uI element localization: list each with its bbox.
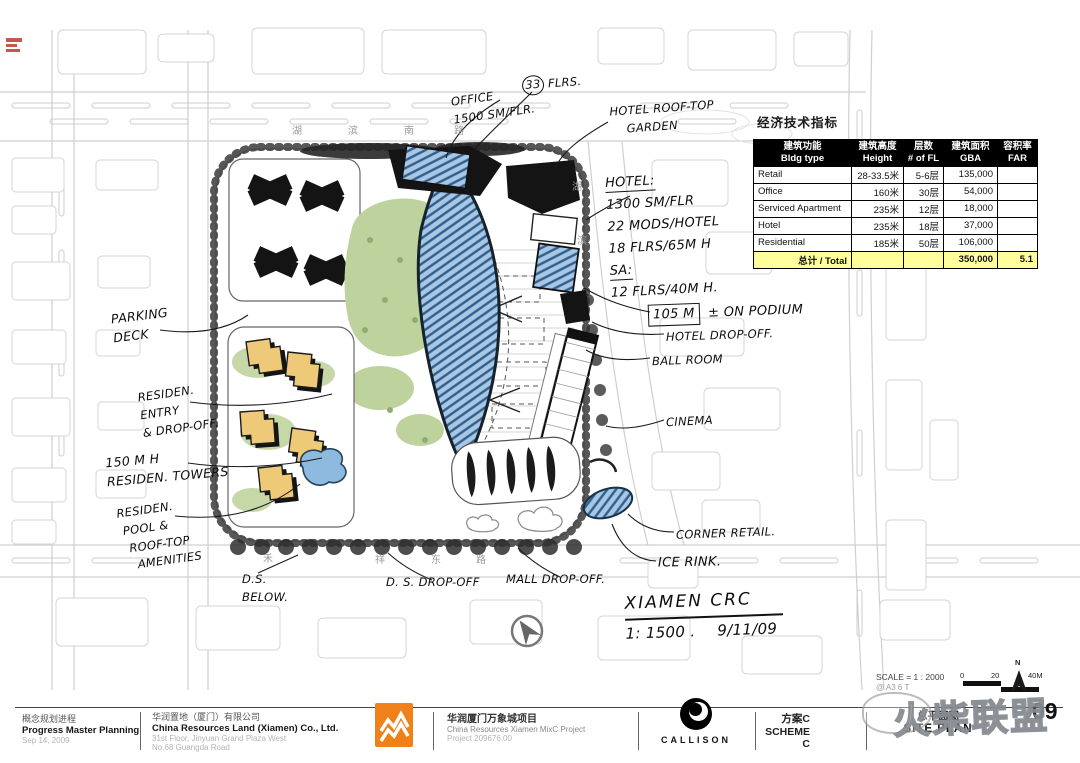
titleblock-divider [433, 712, 434, 750]
annotation-corner-retail: CORNER RETAIL. [676, 523, 776, 544]
client-address-2: No.68 Guangda Road [152, 743, 338, 752]
annotation-line: D.S. [242, 571, 288, 589]
annotation-ballroom: BALL ROOM [652, 351, 724, 371]
table-row: Office160米30层54,000 [754, 183, 1038, 200]
road-label-hexiang-east: 路 [476, 551, 486, 566]
titleblock-phase: 概念规划进程 Progress Master Planning Sep 14, … [22, 712, 139, 745]
road-label-hexiang-east: 东 [431, 551, 441, 566]
watermark: 火柴联盟 [892, 685, 1050, 744]
road-label-hubin-south: 滨 [348, 122, 358, 137]
annotation-signature: XIAMEN CRC 1: 1500 . 9/11/09 [624, 585, 784, 646]
annotation-hotel-dropoff: HOTEL DROP-OFF. [666, 325, 774, 347]
annotation-mall-dropoff: MALL DROP-OFF. [506, 571, 605, 589]
scale-tick: 0 [960, 671, 964, 680]
annotation-hotel-garden: HOTEL ROOF-TOP GARDEN [609, 96, 716, 139]
callison-logo-text: CALLISON [648, 735, 744, 745]
cloud-doodles [467, 507, 562, 532]
titleblock-client: 华润置地（厦门）有限公司 China Resources Land (Xiame… [152, 710, 338, 752]
client-name-en: China Resources Land (Xiamen) Co., Ltd. [152, 723, 338, 734]
annotation-office-floors: 33 FLRS. [521, 72, 582, 96]
road-label-east: 湖 [572, 178, 582, 193]
scale-tick: 20 [991, 671, 999, 680]
annotation-line: XIAMEN CRC [624, 585, 783, 617]
table-row: Hotel235米18层37,000 [754, 217, 1038, 234]
project-number: Project 209676.00 [447, 734, 585, 743]
red-stamp [6, 38, 22, 52]
col-header-bldg-type: 建筑功能Bldg type [754, 140, 852, 167]
annotation-residential-pool: RESIDEN. POOL & ROOF-TOP AMENITIES [115, 495, 203, 577]
phase-date: Sep 14, 2009 [22, 736, 139, 745]
titleblock-divider [140, 712, 141, 750]
corner-retail-shape [590, 460, 616, 472]
client-address-1: 31st Floor, Jinyuan Grand Plaza West [152, 734, 338, 743]
phase-title-en: Progress Master Planning [22, 725, 139, 736]
road-label-east: 滨 [577, 232, 587, 247]
boxed-value: 105 M [648, 303, 700, 327]
road-label-hubin-south: 南 [404, 122, 414, 137]
compass-icon [512, 615, 542, 646]
col-header-far: 容积率FAR [998, 140, 1038, 167]
scale-text: SCALE = 1 : 2000 [876, 672, 944, 682]
annotation-ice-rink: ICE RINK. [658, 552, 722, 573]
residential-parcel-south [228, 327, 354, 527]
circled-number: 33 [521, 75, 544, 96]
scale-bar-segment [963, 681, 1001, 686]
annotation-hotel-notes: HOTEL: 1300 SM/FLR 22 MODS/HOTEL 18 FLRS… [605, 167, 724, 305]
annotation-scale: 1: 1500 . [625, 621, 696, 647]
road-label-hubin-south: 湖 [292, 122, 302, 137]
economic-indicators-panel: 经济技术指标 建筑功能Bldg type 建筑高度Height 层数# of F… [753, 112, 1038, 269]
annotation-line: HOTEL: [605, 173, 655, 193]
annotation-line: FLRS. [547, 74, 581, 90]
annotation-line: BELOW. [242, 589, 288, 607]
china-resources-logo [375, 703, 413, 748]
annotation-residential-entry: RESIDEN. ENTRY & DROP-OFF. [137, 379, 220, 443]
titleblock-divider [638, 712, 639, 750]
retail-arcade [450, 436, 582, 507]
titleblock-project: 华润厦门万象城项目 China Resources Xiamen MixC Pr… [447, 710, 585, 743]
titleblock-scheme: 方案C SCHEME C [756, 711, 810, 750]
client-name-cn: 华润置地（厦门）有限公司 [152, 710, 338, 723]
residential-parcel-north [229, 159, 360, 301]
table-header-row: 建筑功能Bldg type 建筑高度Height 层数# of FL 建筑面积G… [754, 140, 1038, 167]
callison-logo-icon [676, 697, 716, 733]
table-total-row: 总计 / Total 350,0005.1 [754, 251, 1038, 268]
scheme-cn: 方案C [756, 711, 810, 726]
road-label-hexiang-east: 祥 [375, 551, 385, 566]
table-row: Serviced Apartment235米12层18,000 [754, 200, 1038, 217]
col-header-gba: 建筑面积GBA [944, 140, 998, 167]
pool-shape [301, 449, 346, 485]
table-row: Residential185米50层106,000 [754, 234, 1038, 251]
annotation-parking-deck: PARKING DECK [110, 303, 171, 348]
table-row: Retail28-33.5米5-6层135,000 [754, 166, 1038, 183]
drawing-sheet: 湖 滨 南 路 湖 滨 禾 祥 东 路 OFFICE 1500 SM/FLR. … [0, 0, 1080, 763]
building-data-table: 建筑功能Bldg type 建筑高度Height 层数# of FL 建筑面积G… [753, 139, 1038, 269]
scheme-en: SCHEME C [756, 726, 810, 750]
phase-title-cn: 概念规划进程 [22, 712, 139, 725]
annotation-line: SA: [609, 263, 633, 281]
project-name-en: China Resources Xiamen MixC Project [447, 725, 585, 734]
annotation-line: ± ON PODIUM [708, 302, 804, 320]
annotation-cinema: CINEMA [666, 412, 714, 432]
table-title: 经济技术指标 [757, 112, 1038, 131]
col-header-floors: 层数# of FL [904, 140, 944, 167]
project-name-cn: 华润厦门万象城项目 [447, 710, 585, 725]
annotation-ds-dropoff: D. S. DROP-OFF [386, 574, 480, 592]
annotation-date: 9/11/09 [717, 618, 778, 643]
road-label-hexiang-east: 禾 [263, 550, 273, 565]
annotation-ds-below: D.S. BELOW. [242, 571, 288, 607]
col-header-height: 建筑高度Height [852, 140, 904, 167]
scale-tick: 40M [1028, 671, 1043, 680]
